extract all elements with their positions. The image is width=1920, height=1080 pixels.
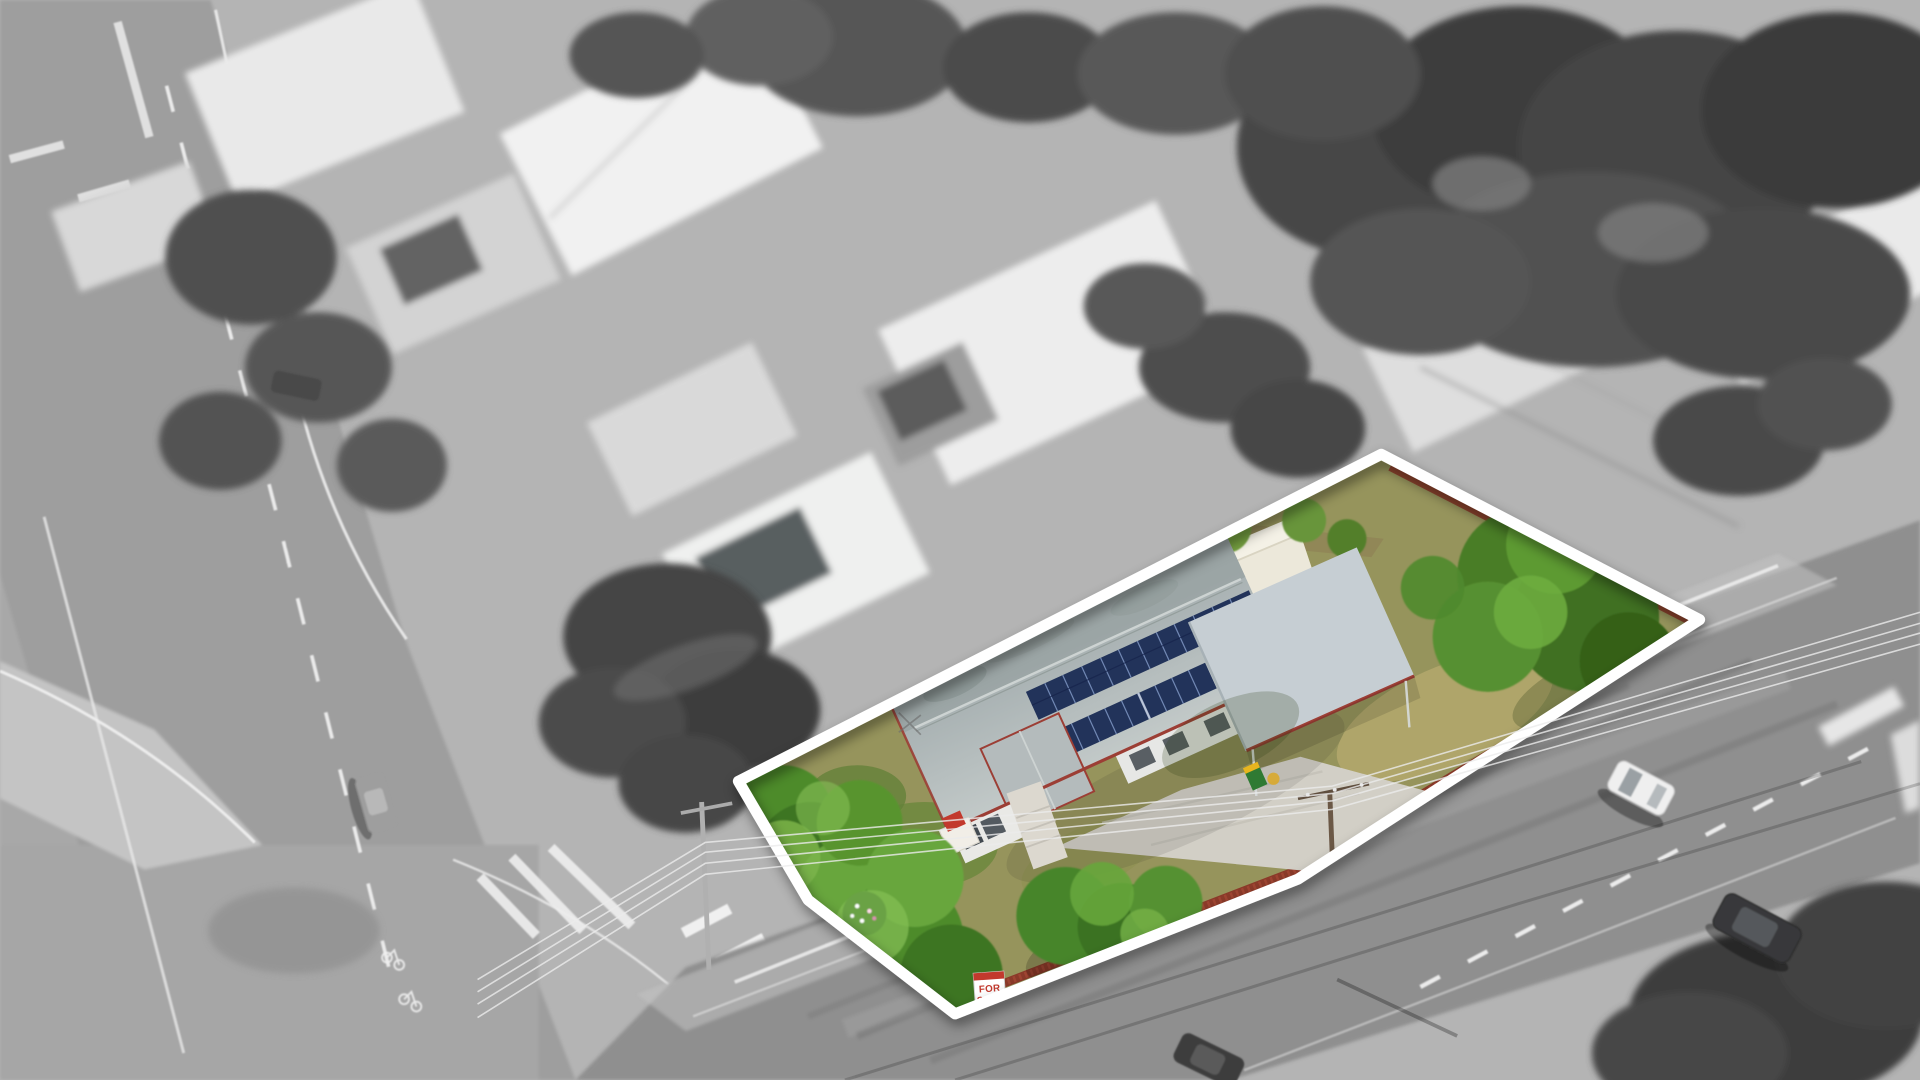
aerial-photo-canvas: FOR SALE: [0, 0, 1920, 1080]
aerial-photo: FOR SALE: [0, 0, 1920, 1080]
yellow-garden-item: [1267, 773, 1279, 785]
